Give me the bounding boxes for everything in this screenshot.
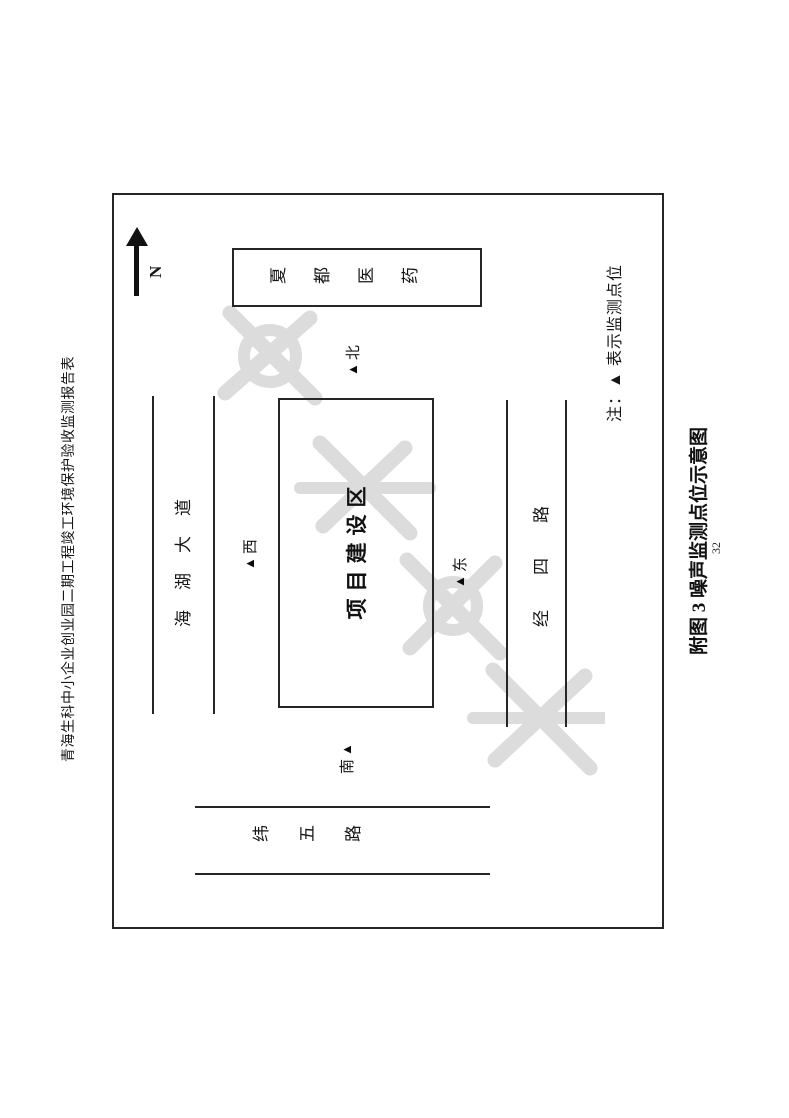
triangle-marker-icon: ▲ [340,743,353,756]
page-title: 青海生科中小企业创业园二期工程竣工环境保护验收监测报告表 [58,0,78,1118]
document-page: 青海生科中小企业创业园二期工程竣工环境保护验收监测报告表 [0,0,789,1118]
road-jingsi-line-north [506,400,508,727]
triangle-marker-icon: ▲ [453,575,466,588]
monitor-point-east-label: 东 [449,557,470,572]
road-haihu-label: 海湖大道 [169,479,194,627]
project-area-label: 项目建设区 [341,480,371,627]
north-arrow-label: N [146,266,166,278]
monitor-point-south: 南 ▲ [336,743,357,774]
road-weiwu-line-east [195,806,490,808]
project-area-box: 项目建设区 [278,398,434,708]
north-arrow [134,244,139,296]
page-number: 32 [709,518,724,578]
road-haihu-line-south [213,396,215,714]
road-haihu-line-north [152,396,154,714]
road-weiwu-label: 纬五路 [252,823,390,848]
neighbor-building-label: 夏都医药 [269,265,445,290]
legend-note: 注：▲ 表示监测点位 [601,264,625,422]
road-jingsi-line-south [565,400,567,727]
road-jingsi-label: 经四路 [527,471,552,627]
rotated-figure-canvas: 青海生科中小企业创业园二期工程竣工环境保护验收监测报告表 [0,0,789,1118]
monitor-point-west-label: 西 [239,539,260,554]
neighbor-building-box: 夏都医药 [232,248,482,307]
figure-caption: 附图 3 噪声监测点位示意图 [684,391,711,691]
monitor-point-north-label: 北 [342,345,363,360]
triangle-marker-icon: ▲ [346,363,359,376]
monitor-point-north: ▲ 北 [342,345,363,376]
north-arrow-head-icon [126,227,148,246]
monitor-point-west: ▲ 西 [239,539,260,570]
triangle-marker-icon: ▲ [243,557,256,570]
monitor-point-east: ▲ 东 [449,557,470,588]
road-weiwu-line-west [195,873,490,875]
monitor-point-south-label: 南 [336,759,357,774]
